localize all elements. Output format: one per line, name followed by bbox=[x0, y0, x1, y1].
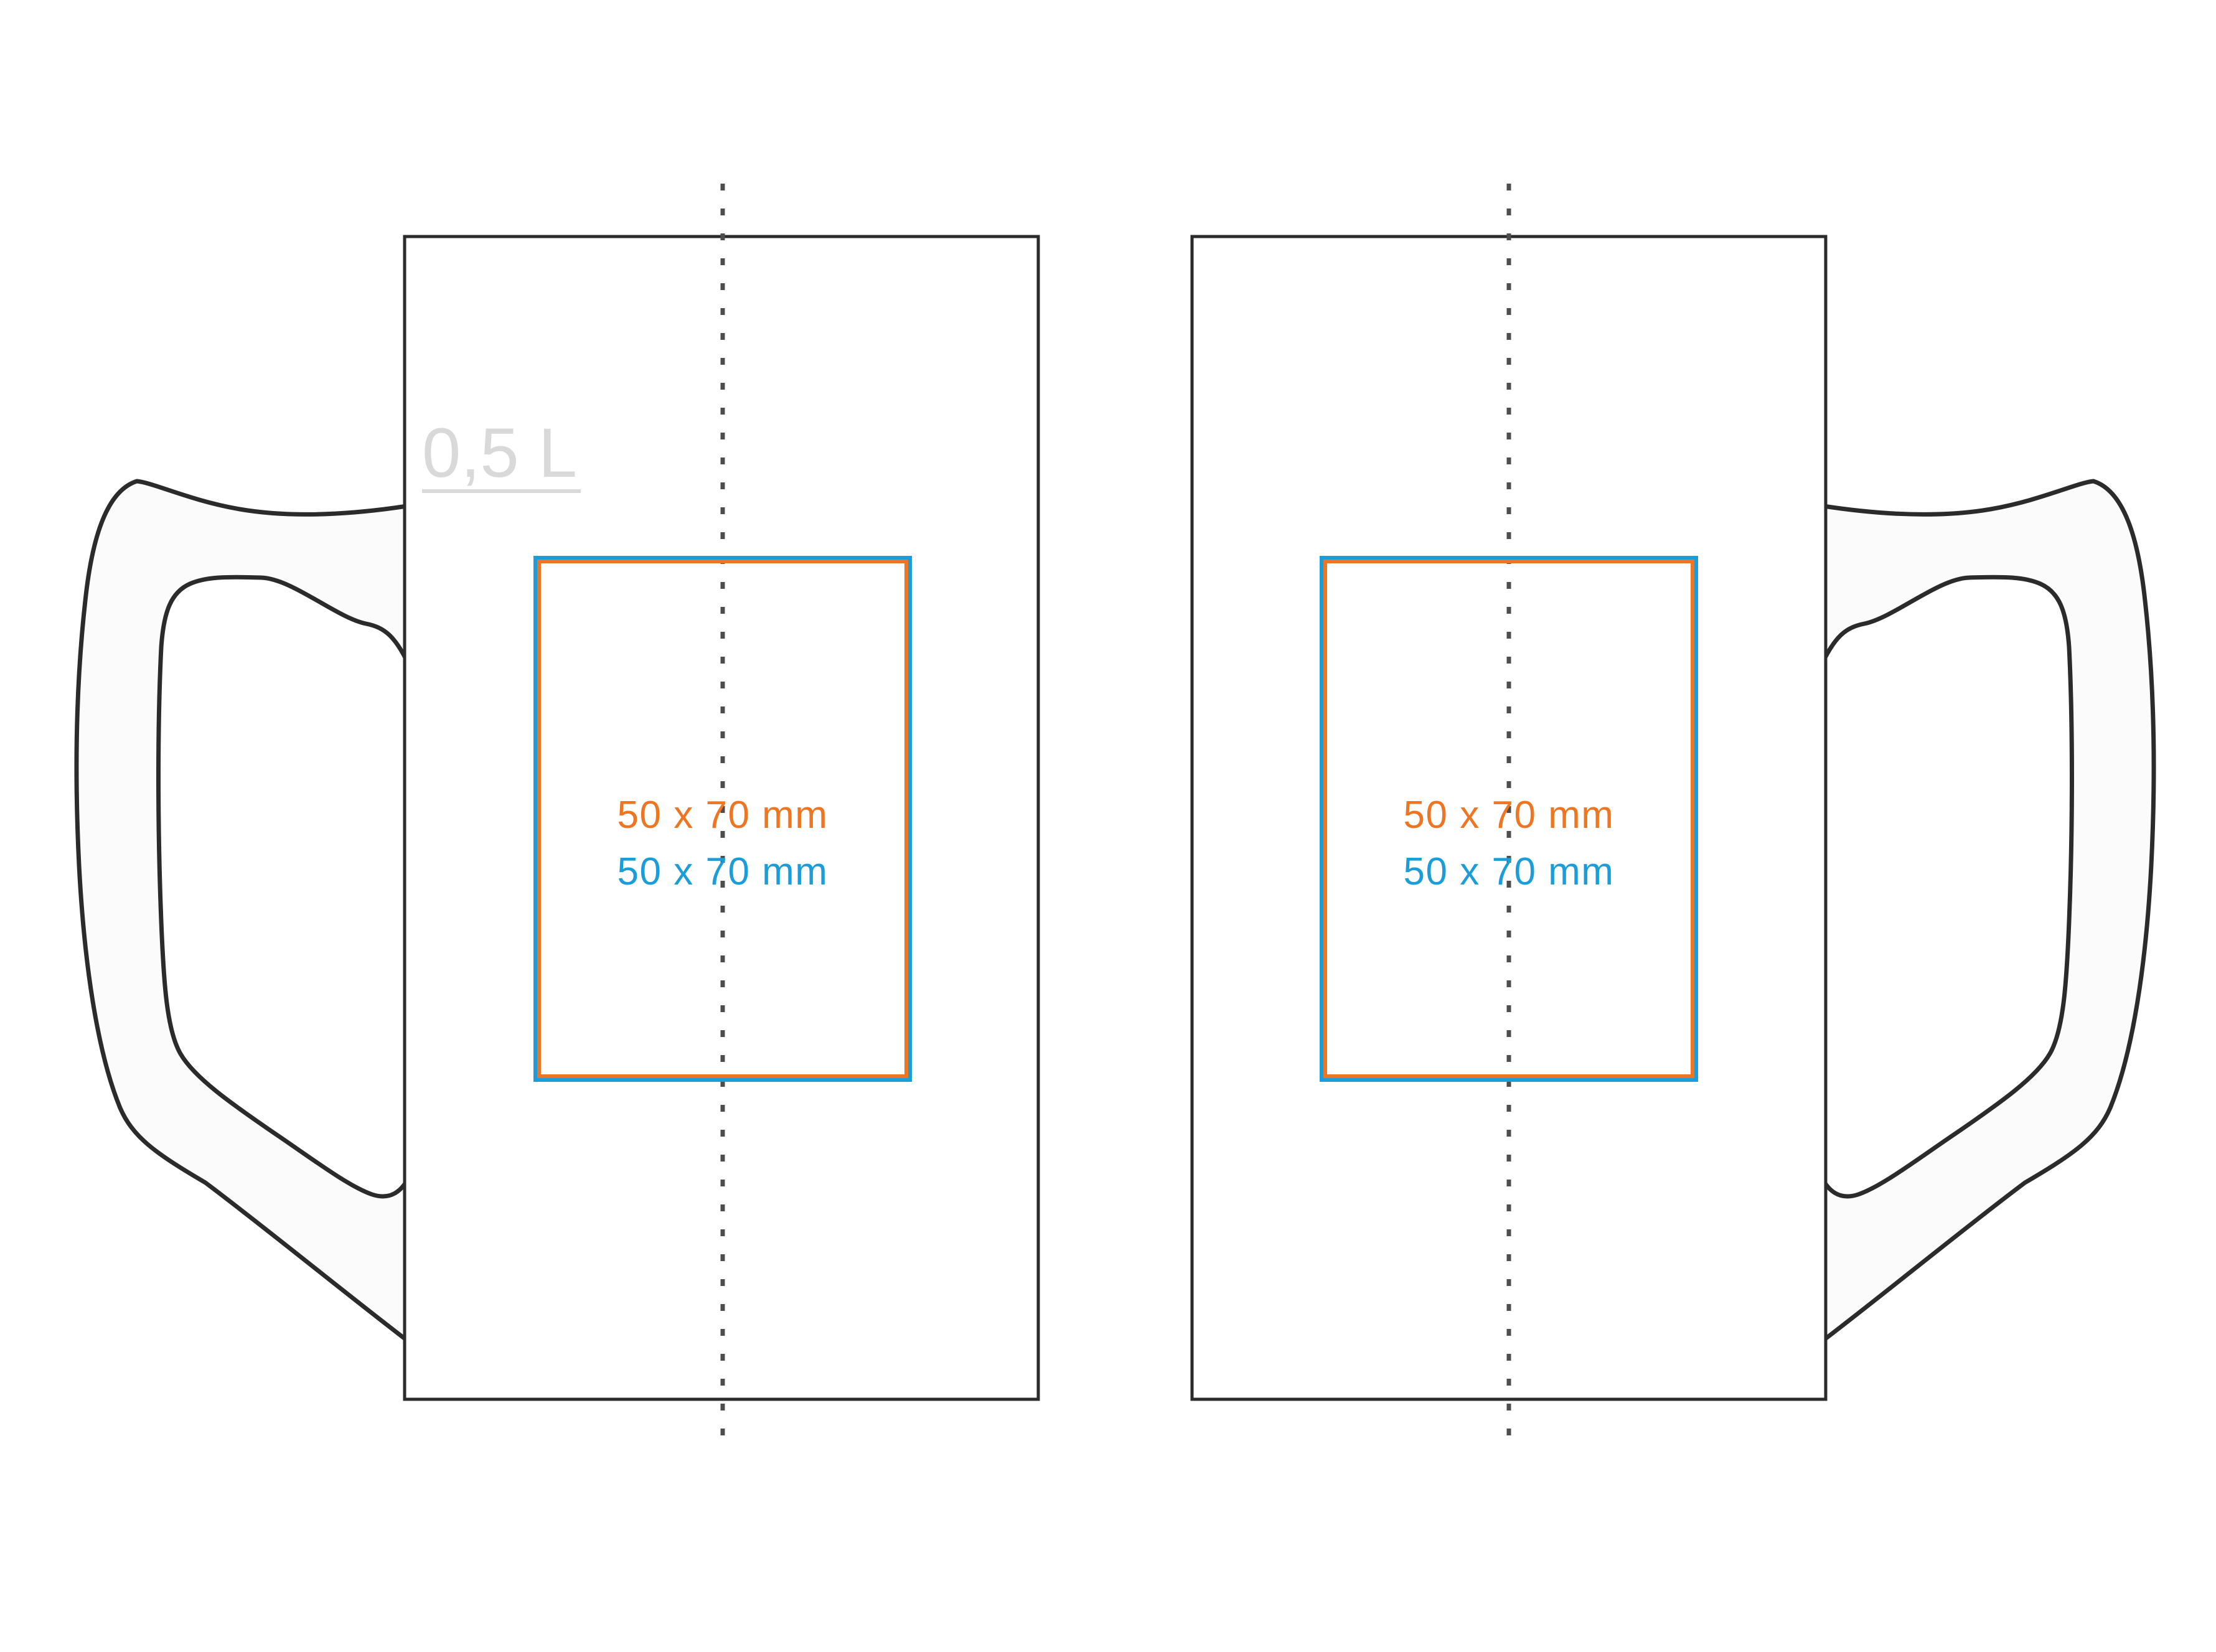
capacity-label: 0,5 L bbox=[422, 418, 581, 493]
front-print-size-label-orange: 50 x 70 mm bbox=[617, 796, 829, 835]
template-drawing bbox=[0, 0, 2216, 1652]
mug-back bbox=[1192, 184, 2154, 1443]
back-print-size-label-orange: 50 x 70 mm bbox=[1404, 796, 1615, 835]
back-print-size-label-blue: 50 x 70 mm bbox=[1404, 853, 1615, 891]
front-print-size-label-blue: 50 x 70 mm bbox=[617, 853, 829, 891]
mug-front bbox=[77, 184, 1038, 1443]
mug-template-canvas: 0,5 L 50 x 70 mm 50 x 70 mm 50 x 70 mm 5… bbox=[0, 0, 2216, 1652]
